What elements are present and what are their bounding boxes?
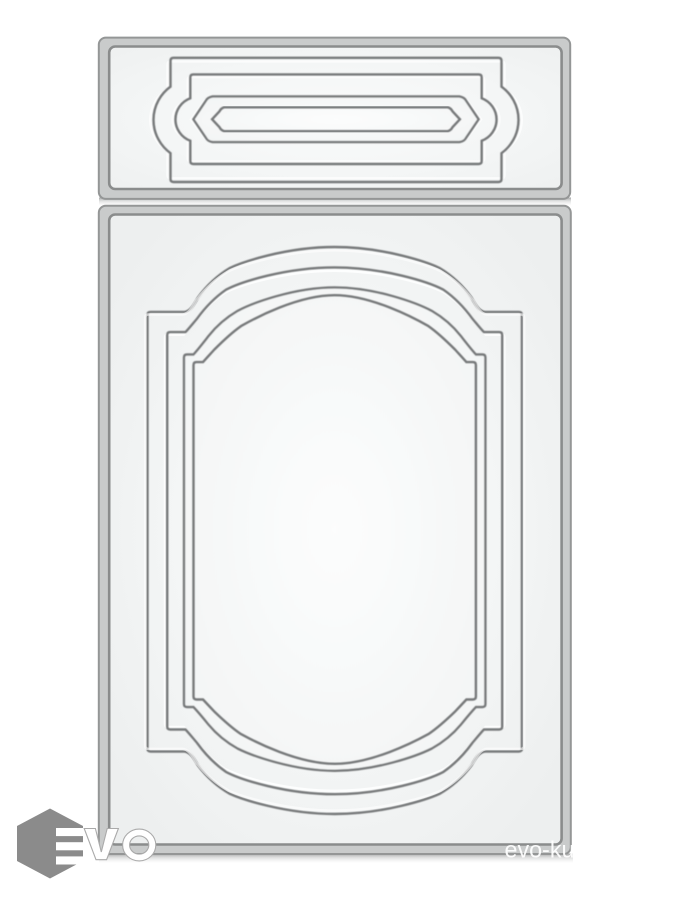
svg-text:evo-kuhni.ru: evo-kuhni.ru <box>505 837 633 863</box>
